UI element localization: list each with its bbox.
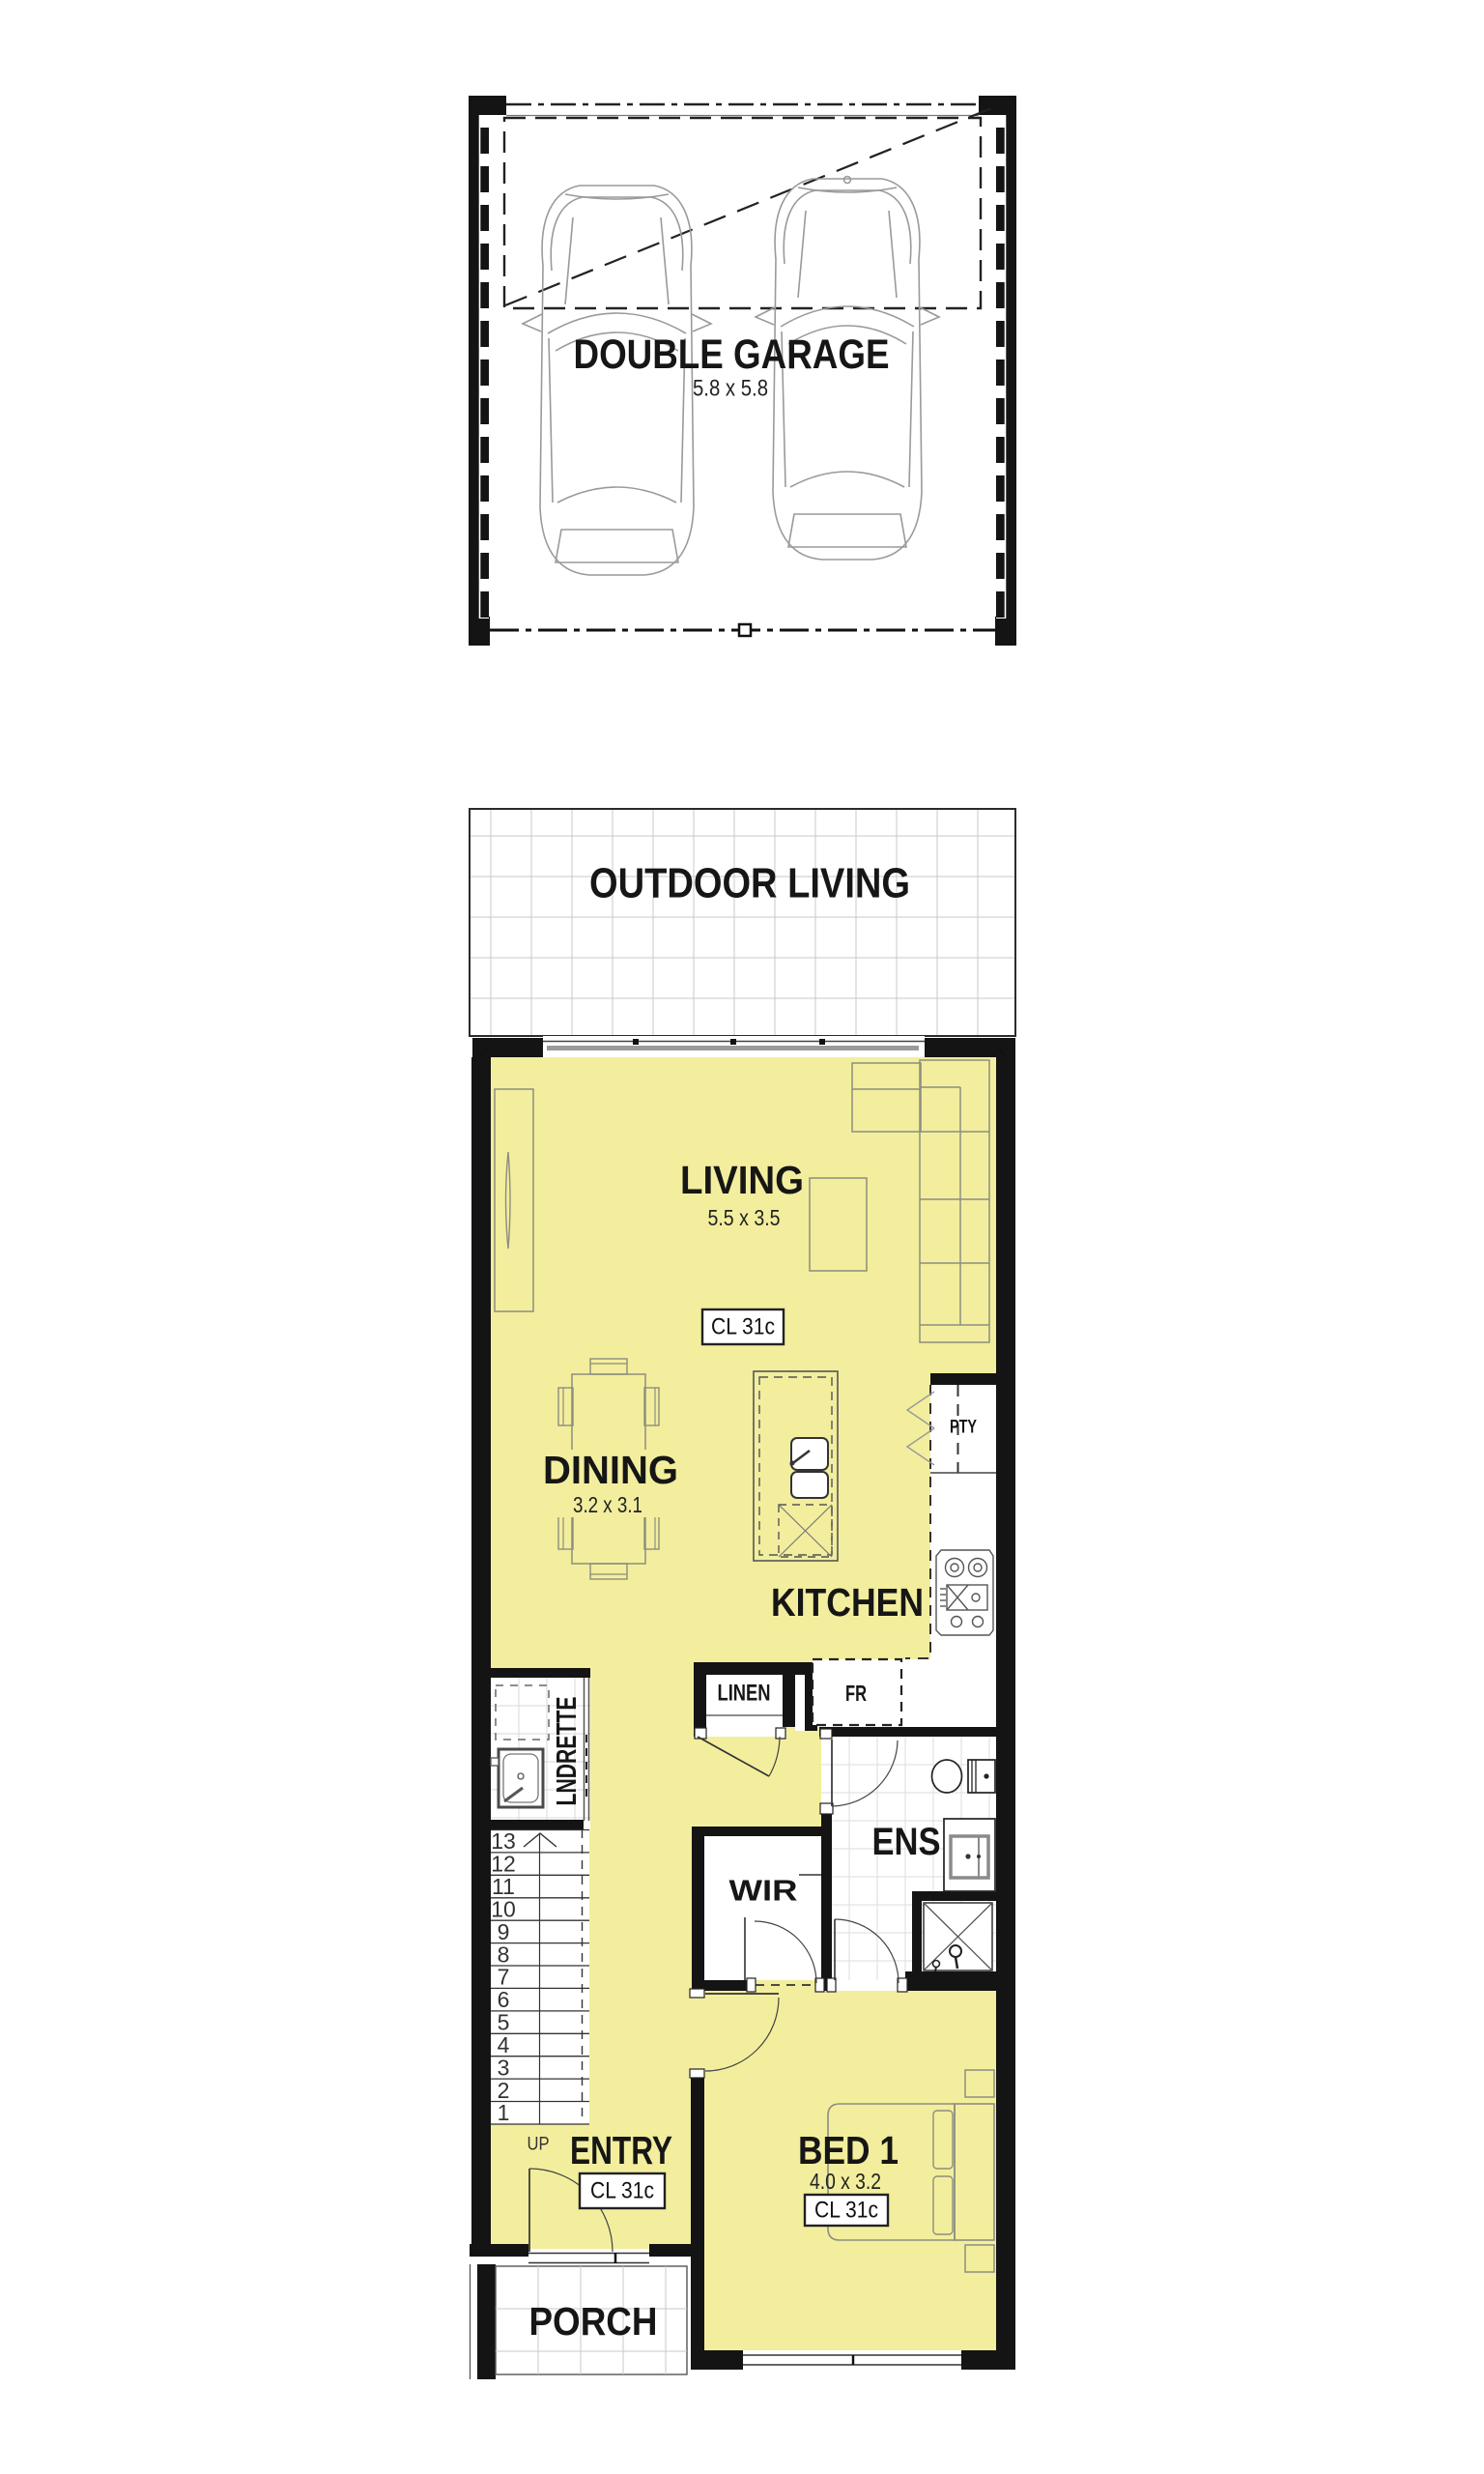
svg-text:13: 13: [491, 1828, 516, 1854]
svg-text:OUTDOOR LIVING: OUTDOOR LIVING: [589, 860, 910, 907]
svg-text:12: 12: [491, 1852, 516, 1877]
svg-text:5: 5: [498, 2010, 510, 2035]
svg-text:7: 7: [498, 1965, 510, 1990]
svg-text:WIR: WIR: [729, 1874, 798, 1908]
svg-text:CL 31c: CL 31c: [590, 2178, 654, 2204]
svg-text:DINING: DINING: [543, 1448, 678, 1492]
svg-text:LNDRETTE: LNDRETTE: [552, 1697, 583, 1806]
svg-text:3.2 x 3.1: 3.2 x 3.1: [573, 1492, 642, 1517]
svg-text:PTY: PTY: [950, 1418, 977, 1438]
svg-text:ENTRY: ENTRY: [570, 2128, 672, 2172]
svg-text:ENS: ENS: [872, 1821, 941, 1863]
svg-text:1: 1: [498, 2100, 510, 2125]
svg-text:KITCHEN: KITCHEN: [771, 1580, 924, 1625]
svg-text:UP: UP: [528, 2135, 550, 2155]
svg-text:4: 4: [498, 2032, 510, 2057]
svg-text:FR: FR: [845, 1681, 867, 1706]
svg-text:3: 3: [498, 2055, 510, 2080]
svg-text:CL 31c: CL 31c: [814, 2198, 878, 2224]
svg-text:5.8 x 5.8: 5.8 x 5.8: [693, 376, 768, 402]
svg-text:6: 6: [498, 1987, 510, 2012]
svg-text:BED 1: BED 1: [798, 2128, 899, 2172]
svg-text:8: 8: [498, 1942, 510, 1967]
svg-text:4.0 x 3.2: 4.0 x 3.2: [810, 2169, 881, 2194]
svg-text:DOUBLE GARAGE: DOUBLE GARAGE: [574, 331, 890, 378]
svg-text:CL 31c: CL 31c: [711, 1314, 775, 1340]
svg-text:2: 2: [498, 2078, 510, 2103]
svg-text:LIVING: LIVING: [680, 1158, 804, 1202]
svg-text:LINEN: LINEN: [718, 1681, 771, 1707]
svg-text:9: 9: [498, 1919, 510, 1944]
svg-text:5.5 x 3.5: 5.5 x 3.5: [708, 1205, 781, 1230]
svg-text:PORCH: PORCH: [529, 2299, 658, 2344]
svg-text:10: 10: [491, 1897, 516, 1922]
svg-text:11: 11: [492, 1874, 515, 1899]
